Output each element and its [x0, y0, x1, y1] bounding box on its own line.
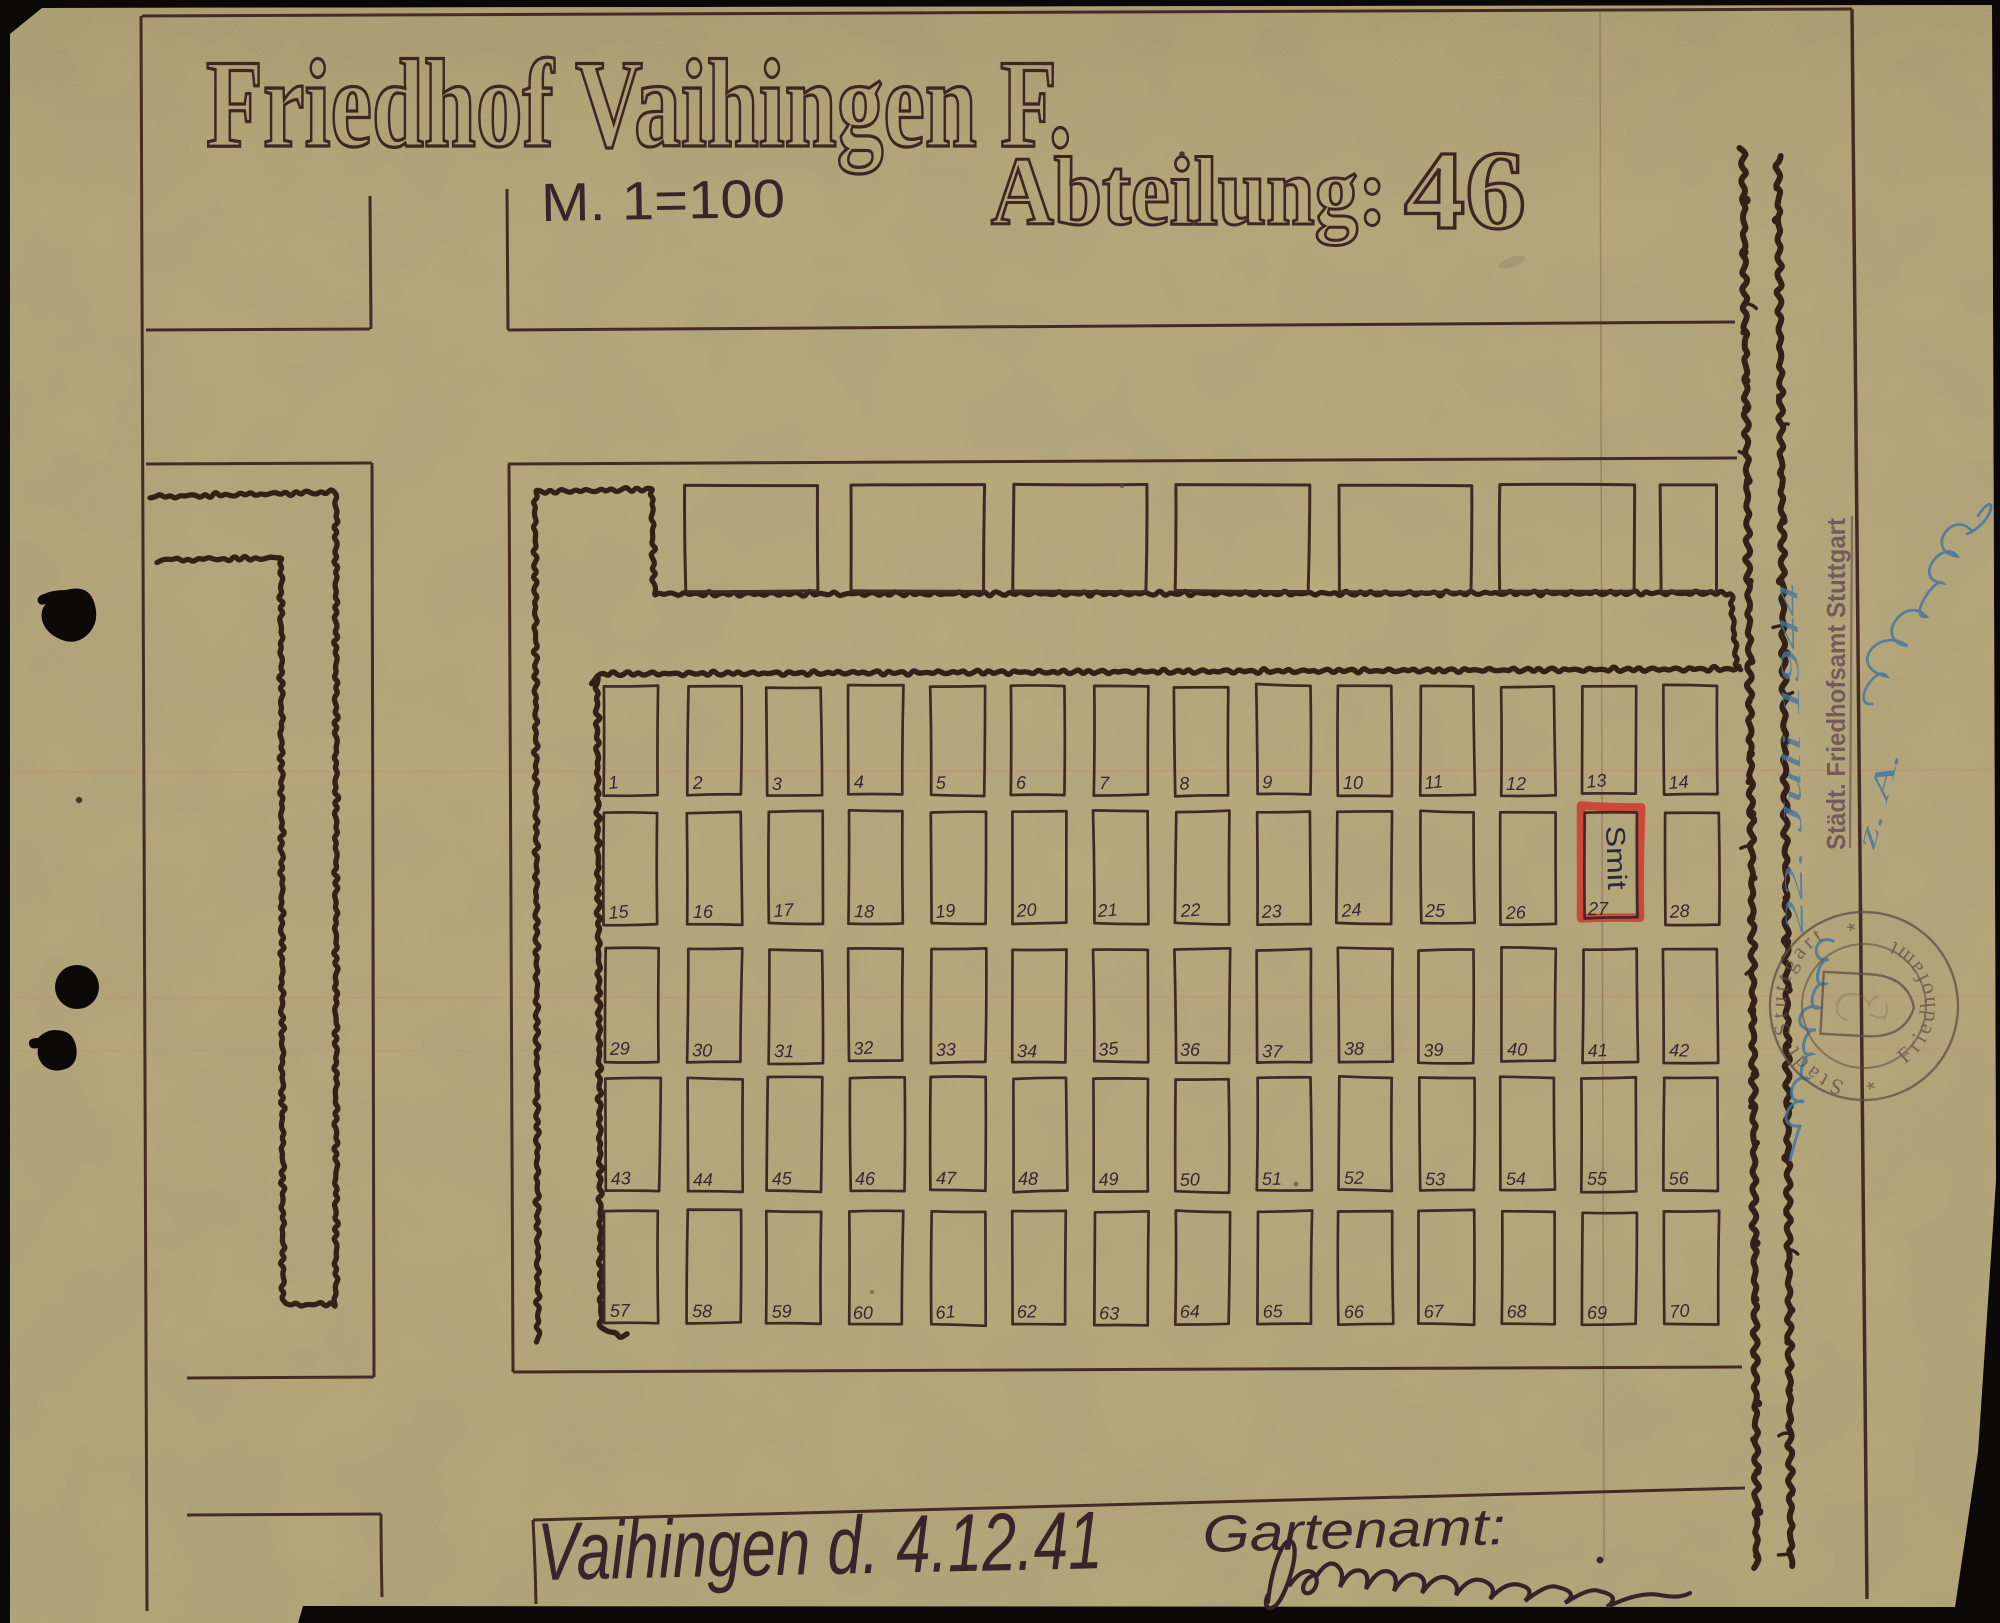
svg-text:Smit: Smit — [1600, 825, 1632, 891]
svg-text:35: 35 — [1097, 1038, 1120, 1060]
svg-text:46: 46 — [855, 1169, 876, 1189]
svg-text:14: 14 — [1668, 772, 1689, 793]
svg-text:43: 43 — [610, 1168, 631, 1189]
svg-text:36: 36 — [1180, 1040, 1201, 1060]
svg-text:8: 8 — [1178, 773, 1190, 794]
svg-text:16: 16 — [693, 902, 714, 922]
svg-text:66: 66 — [1344, 1302, 1365, 1322]
svg-text:55: 55 — [1587, 1169, 1608, 1189]
svg-text:58: 58 — [692, 1301, 712, 1321]
svg-text:44: 44 — [693, 1170, 713, 1190]
svg-text:21: 21 — [1096, 900, 1118, 921]
svg-text:Vaihingen d. 4.12.41: Vaihingen d. 4.12.41 — [536, 1495, 1103, 1598]
svg-text:39: 39 — [1423, 1039, 1445, 1061]
svg-text:26: 26 — [1504, 902, 1527, 923]
svg-text:7: 7 — [1099, 773, 1110, 793]
svg-text:20: 20 — [1015, 900, 1037, 921]
svg-text:47: 47 — [936, 1168, 957, 1188]
svg-text:67: 67 — [1423, 1301, 1445, 1322]
svg-text:10: 10 — [1343, 773, 1363, 793]
svg-text:68: 68 — [1506, 1301, 1527, 1322]
svg-text:15: 15 — [608, 901, 631, 923]
svg-text:3: 3 — [772, 774, 782, 794]
svg-text:Abteilung:: Abteilung: — [991, 138, 1387, 246]
svg-text:23: 23 — [1260, 901, 1282, 922]
svg-text:54: 54 — [1506, 1169, 1526, 1189]
svg-text:65: 65 — [1262, 1301, 1284, 1322]
svg-text:22. Juli 1944: 22. Juli 1944 — [1774, 583, 1809, 933]
svg-text:69: 69 — [1587, 1303, 1607, 1323]
svg-text:13: 13 — [1585, 770, 1607, 792]
svg-text:31: 31 — [774, 1041, 794, 1061]
svg-text:48: 48 — [1018, 1169, 1038, 1189]
svg-text:M. 1=100: M. 1=100 — [541, 169, 786, 233]
svg-text:40: 40 — [1507, 1039, 1528, 1060]
svg-text:60: 60 — [853, 1303, 873, 1323]
svg-text:19: 19 — [934, 900, 956, 922]
svg-text:50: 50 — [1179, 1169, 1200, 1190]
svg-text:34: 34 — [1017, 1041, 1037, 1061]
svg-text:Städt. Friedhofsamt Stuttgart: Städt. Friedhofsamt Stuttgart — [1821, 518, 1851, 850]
svg-text:49: 49 — [1098, 1169, 1119, 1190]
svg-text:59: 59 — [771, 1301, 792, 1322]
svg-text:29: 29 — [608, 1038, 630, 1059]
svg-text:64: 64 — [1179, 1301, 1200, 1322]
svg-text:32: 32 — [853, 1037, 875, 1059]
svg-text:41: 41 — [1587, 1040, 1608, 1061]
svg-text:11: 11 — [1423, 771, 1444, 793]
svg-text:53: 53 — [1425, 1169, 1445, 1189]
svg-text:25: 25 — [1424, 901, 1446, 921]
svg-text:24: 24 — [1340, 899, 1363, 921]
svg-text:4: 4 — [854, 772, 864, 792]
svg-text:12: 12 — [1506, 774, 1526, 794]
svg-text:52: 52 — [1344, 1168, 1364, 1188]
svg-text:56: 56 — [1668, 1168, 1690, 1189]
svg-text:6: 6 — [1016, 773, 1027, 793]
svg-text:61: 61 — [935, 1301, 957, 1323]
svg-text:51: 51 — [1262, 1169, 1282, 1189]
svg-text:1: 1 — [607, 772, 619, 793]
svg-text:18: 18 — [854, 901, 875, 922]
svg-text:33: 33 — [935, 1039, 956, 1060]
svg-text:63: 63 — [1099, 1303, 1120, 1324]
svg-text:46: 46 — [1404, 129, 1526, 253]
svg-text:17: 17 — [773, 900, 795, 921]
svg-text:45: 45 — [771, 1168, 793, 1189]
svg-text:62: 62 — [1016, 1301, 1037, 1322]
svg-text:57: 57 — [609, 1300, 631, 1321]
svg-text:42: 42 — [1669, 1040, 1690, 1061]
svg-text:Gartenamt:: Gartenamt: — [1202, 1498, 1506, 1564]
svg-text:5: 5 — [935, 773, 947, 793]
svg-text:22: 22 — [1179, 900, 1201, 921]
svg-text:37: 37 — [1262, 1041, 1284, 1062]
svg-text:30: 30 — [692, 1040, 713, 1061]
svg-text:38: 38 — [1344, 1039, 1364, 1059]
svg-text:70: 70 — [1669, 1300, 1691, 1322]
svg-text:Friedhof Vaihingen F.: Friedhof Vaihingen F. — [206, 35, 1072, 174]
svg-text:2: 2 — [691, 772, 703, 793]
svg-text:27: 27 — [1587, 899, 1609, 919]
svg-text:9: 9 — [1262, 772, 1273, 792]
svg-text:28: 28 — [1668, 901, 1690, 922]
